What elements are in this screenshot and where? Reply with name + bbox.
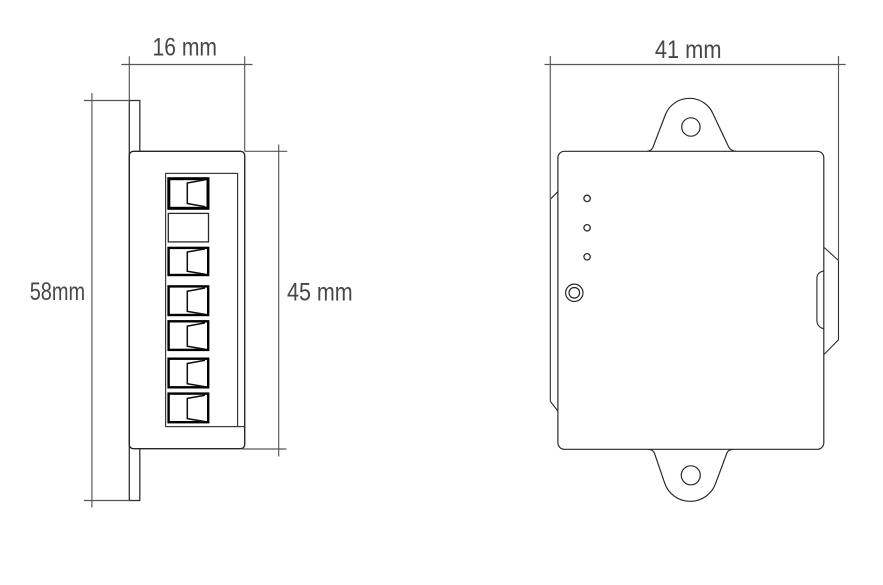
svg-text:16 mm: 16 mm — [153, 34, 218, 62]
svg-text:58mm: 58mm — [30, 278, 85, 306]
svg-text:41 mm: 41 mm — [655, 36, 722, 64]
svg-text:45 mm: 45 mm — [287, 279, 353, 307]
